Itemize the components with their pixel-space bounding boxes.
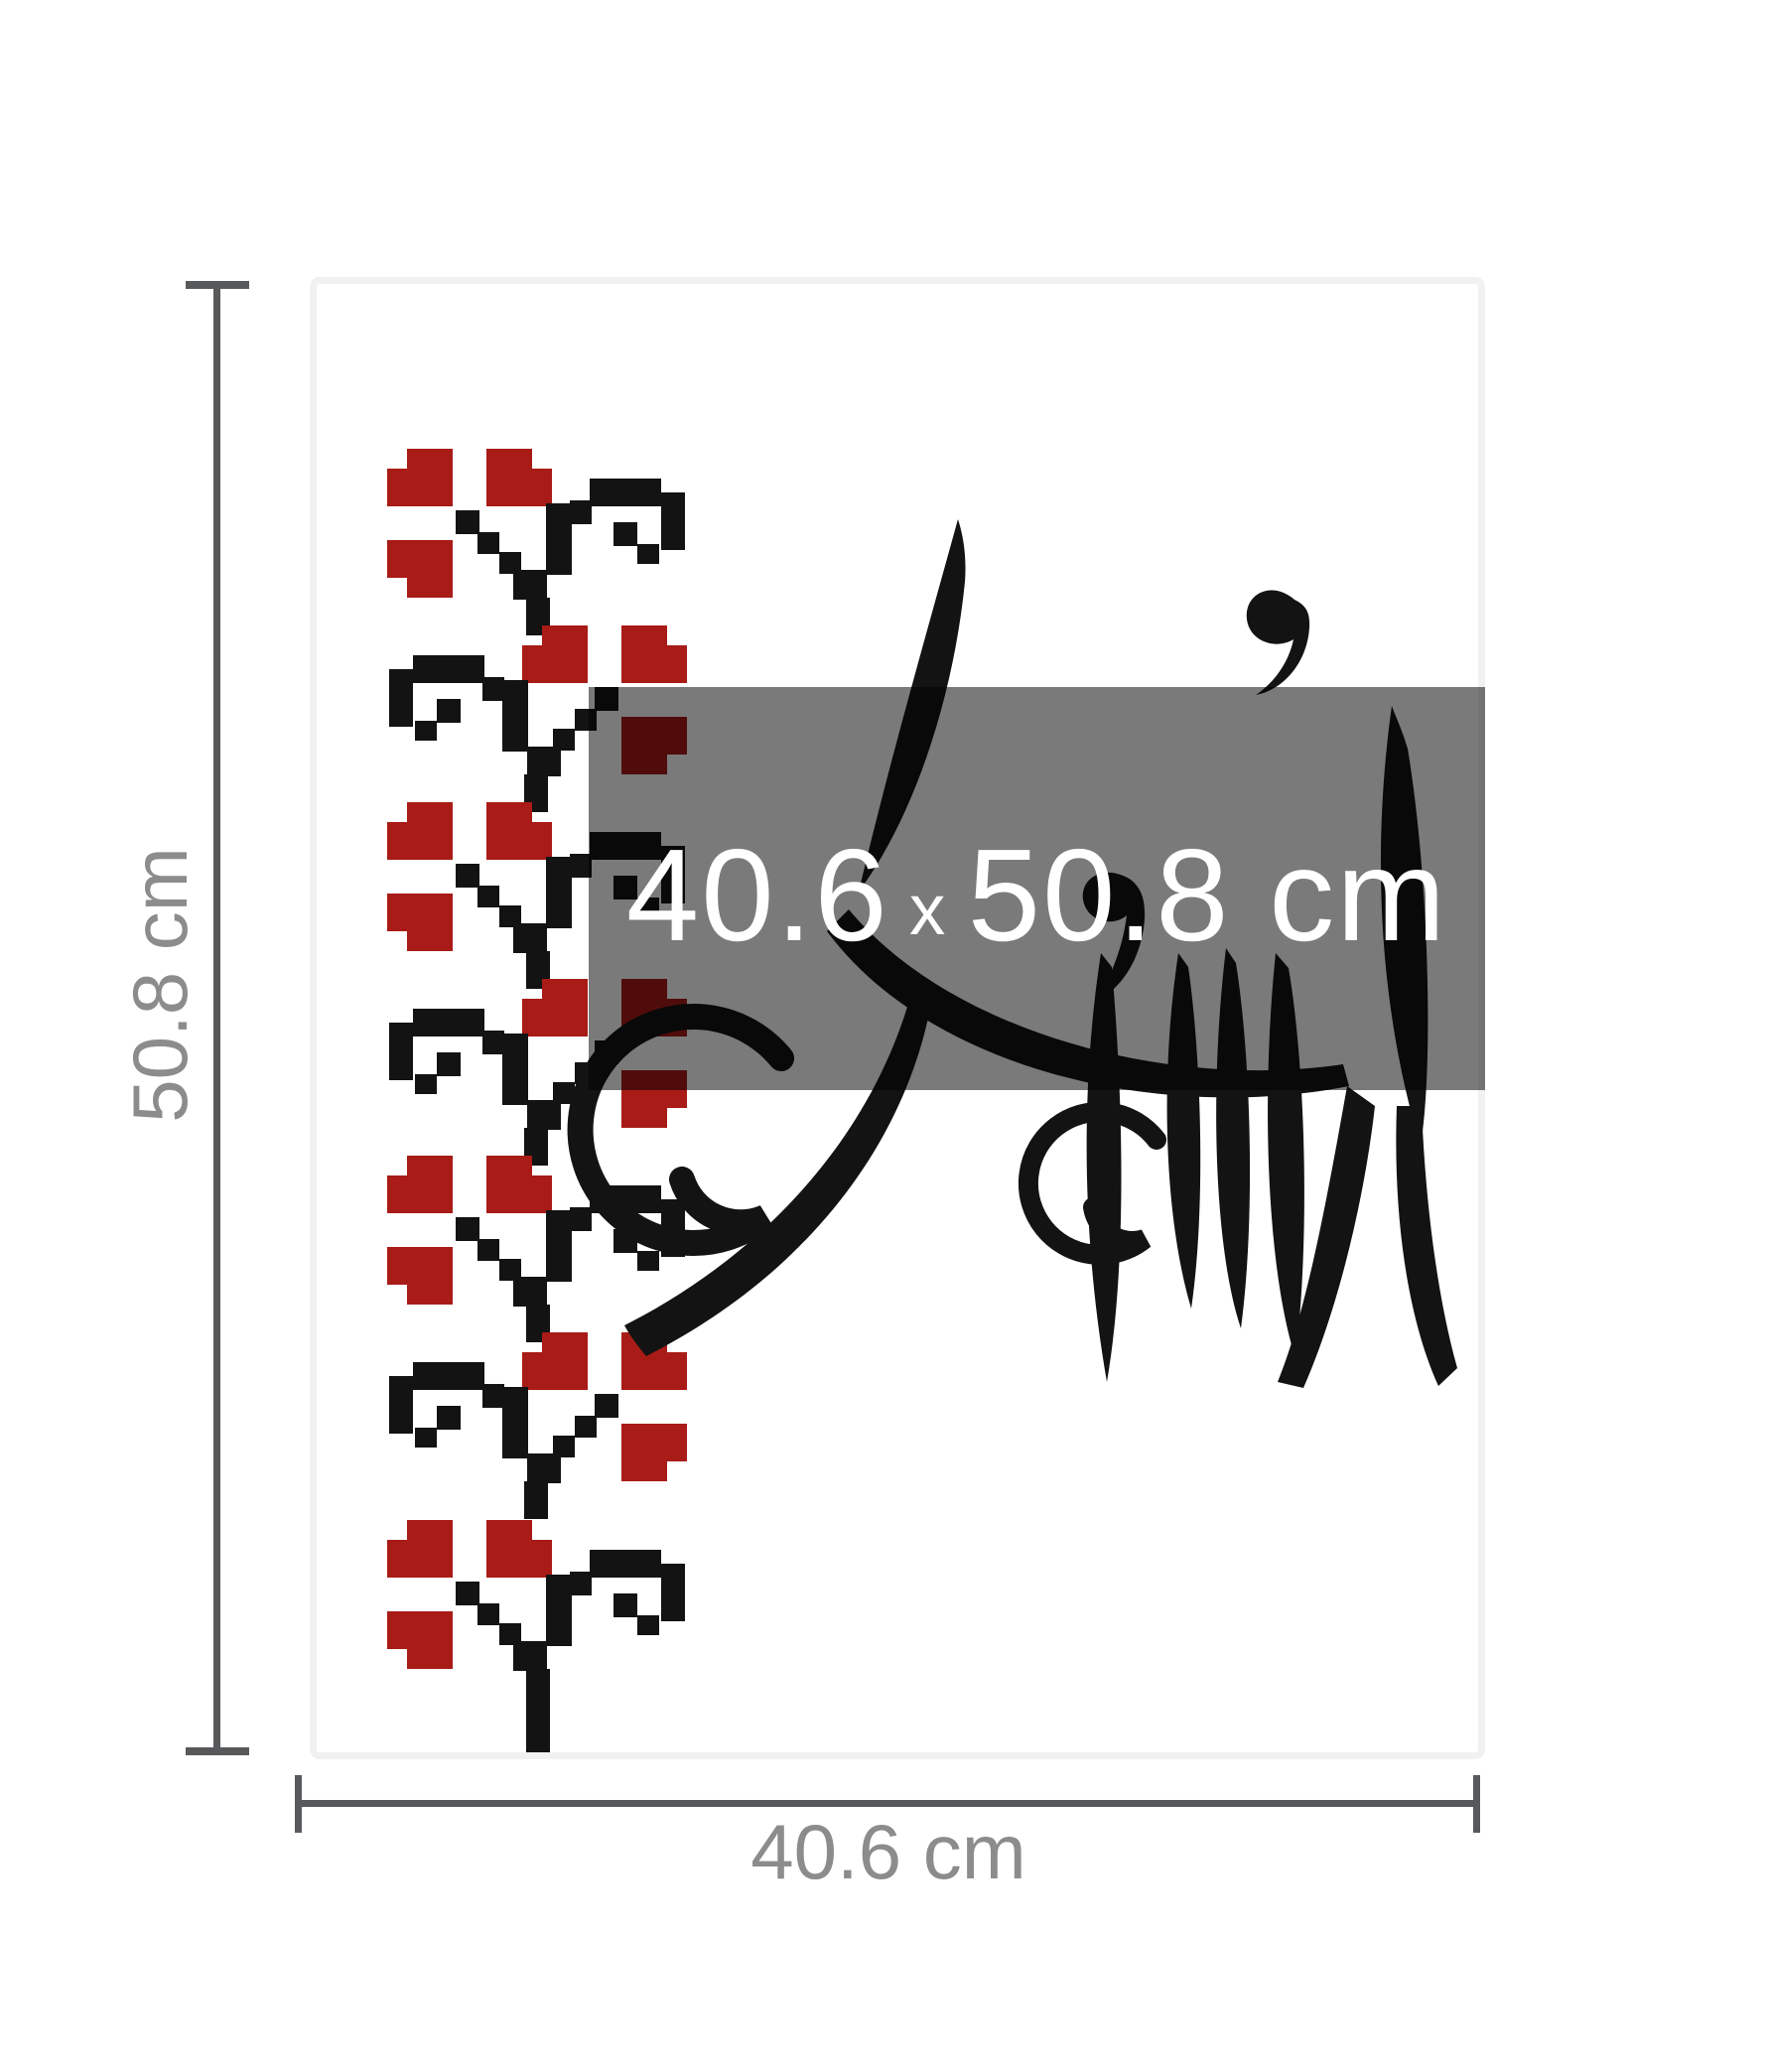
height-dimension-cap-bottom: [186, 1747, 249, 1755]
size-overlay-band: 40.6x50.8 cm: [589, 687, 1485, 1090]
height-dimension-line: [213, 281, 220, 1755]
size-separator: x: [909, 870, 947, 950]
width-dimension-cap-left: [295, 1775, 302, 1833]
height-dimension-cap-top: [186, 281, 249, 289]
width-dimension-label: 40.6 cm: [750, 1813, 1025, 1890]
height-dimension-label: 50.8 cm: [121, 847, 199, 1122]
width-dimension-cap-right: [1473, 1775, 1480, 1833]
width-dimension-line: [295, 1800, 1480, 1807]
size-overlay-text: 40.6x50.8 cm: [626, 830, 1447, 961]
size-height-value: 50.8 cm: [968, 822, 1448, 968]
product-dimension-mockup: 50.8 cm 40.6 cm 40.6x50.8 cm: [0, 0, 1769, 2072]
size-width-value: 40.6: [626, 822, 889, 968]
